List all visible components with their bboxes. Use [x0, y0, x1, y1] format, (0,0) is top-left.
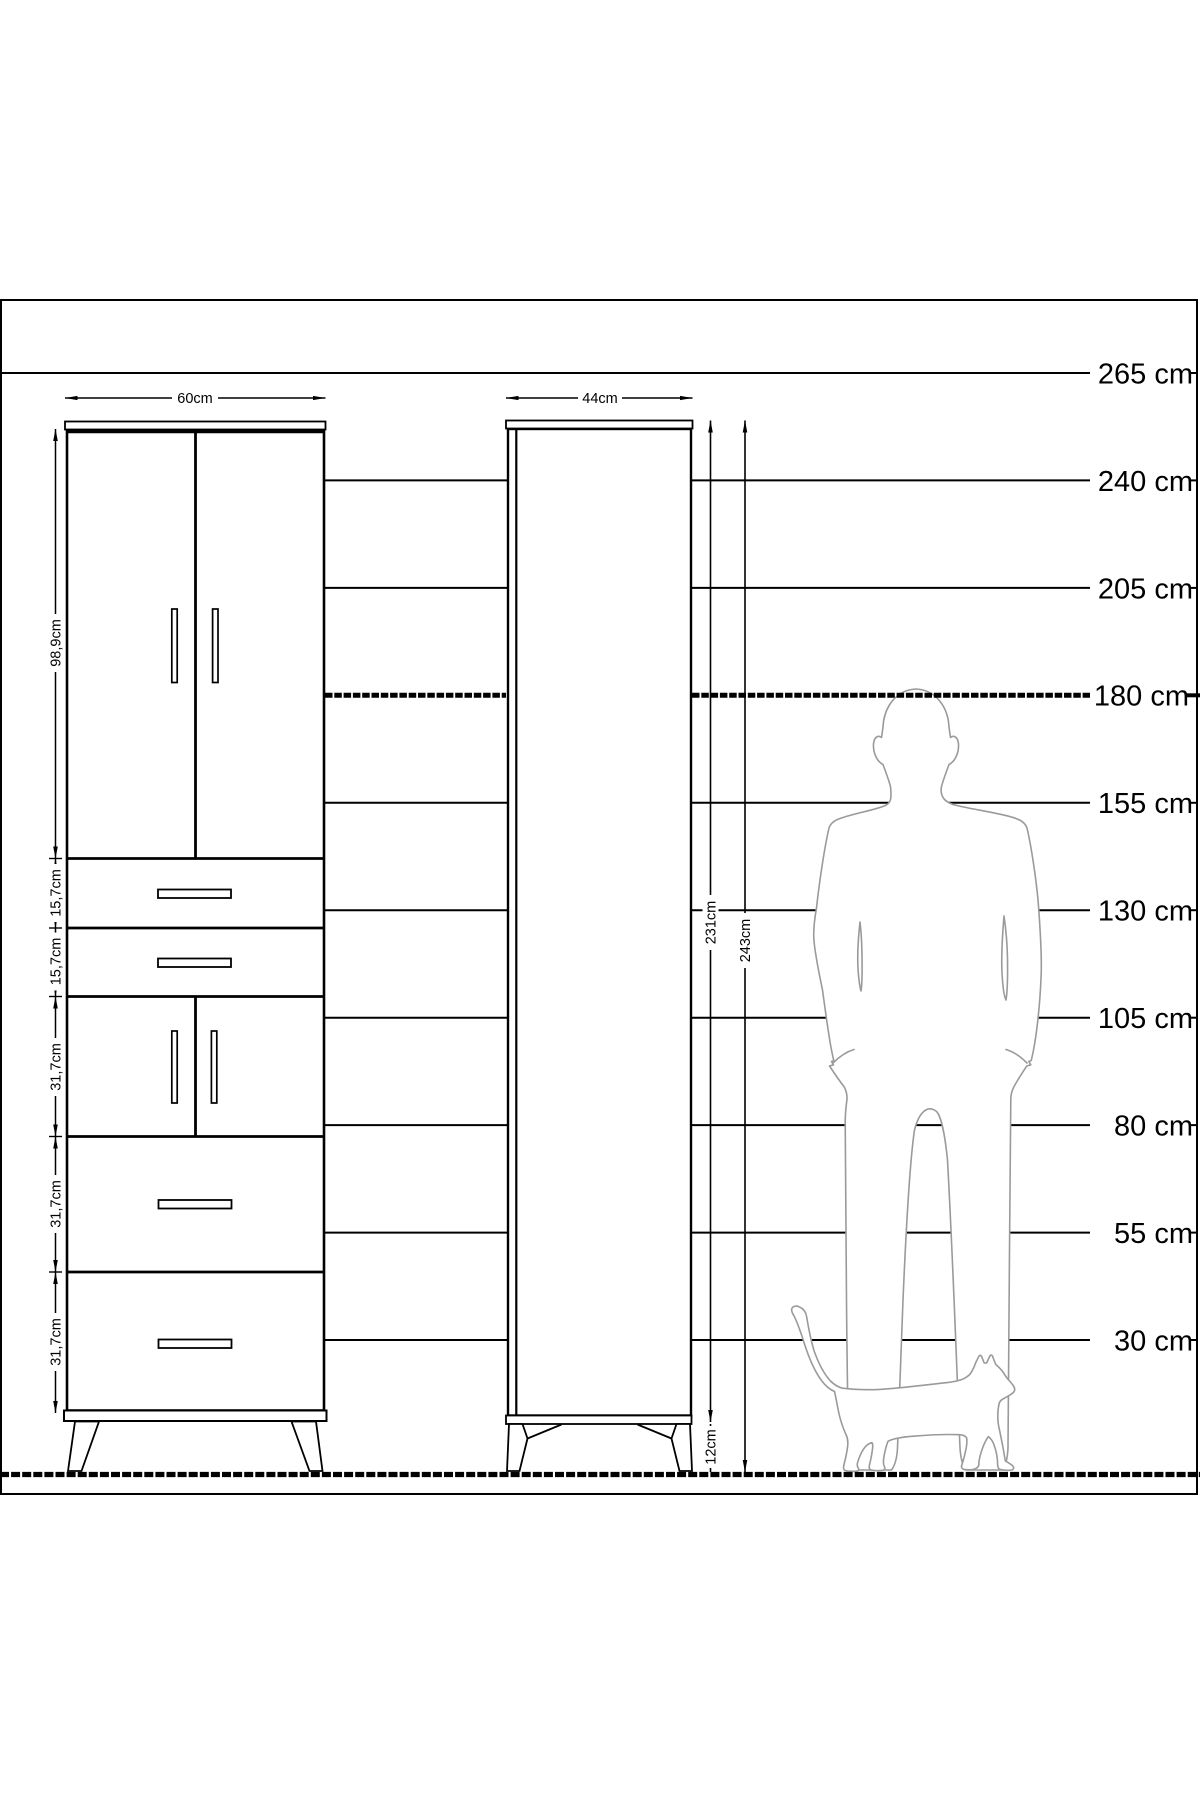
svg-text:130 cm: 130 cm — [1098, 896, 1193, 928]
svg-text:180 cm: 180 cm — [1094, 681, 1189, 713]
svg-text:243cm: 243cm — [738, 919, 754, 963]
svg-text:30 cm: 30 cm — [1114, 1325, 1193, 1357]
svg-text:44cm: 44cm — [582, 391, 617, 407]
svg-text:15,7cm: 15,7cm — [49, 938, 65, 986]
svg-text:240 cm: 240 cm — [1098, 466, 1193, 498]
svg-text:80 cm: 80 cm — [1114, 1111, 1193, 1143]
svg-text:105 cm: 105 cm — [1098, 1003, 1193, 1035]
svg-text:31,7cm: 31,7cm — [49, 1318, 65, 1366]
svg-text:55 cm: 55 cm — [1114, 1218, 1193, 1250]
svg-text:98,9cm: 98,9cm — [49, 619, 65, 667]
svg-text:15,7cm: 15,7cm — [49, 869, 65, 917]
svg-text:31,7cm: 31,7cm — [49, 1043, 65, 1091]
svg-text:205 cm: 205 cm — [1098, 573, 1193, 605]
svg-text:31,7cm: 31,7cm — [49, 1180, 65, 1228]
svg-text:12cm: 12cm — [704, 1429, 720, 1464]
svg-text:155 cm: 155 cm — [1098, 788, 1193, 820]
svg-text:60cm: 60cm — [177, 391, 212, 407]
svg-text:265 cm: 265 cm — [1098, 358, 1193, 390]
svg-text:231cm: 231cm — [704, 901, 720, 945]
